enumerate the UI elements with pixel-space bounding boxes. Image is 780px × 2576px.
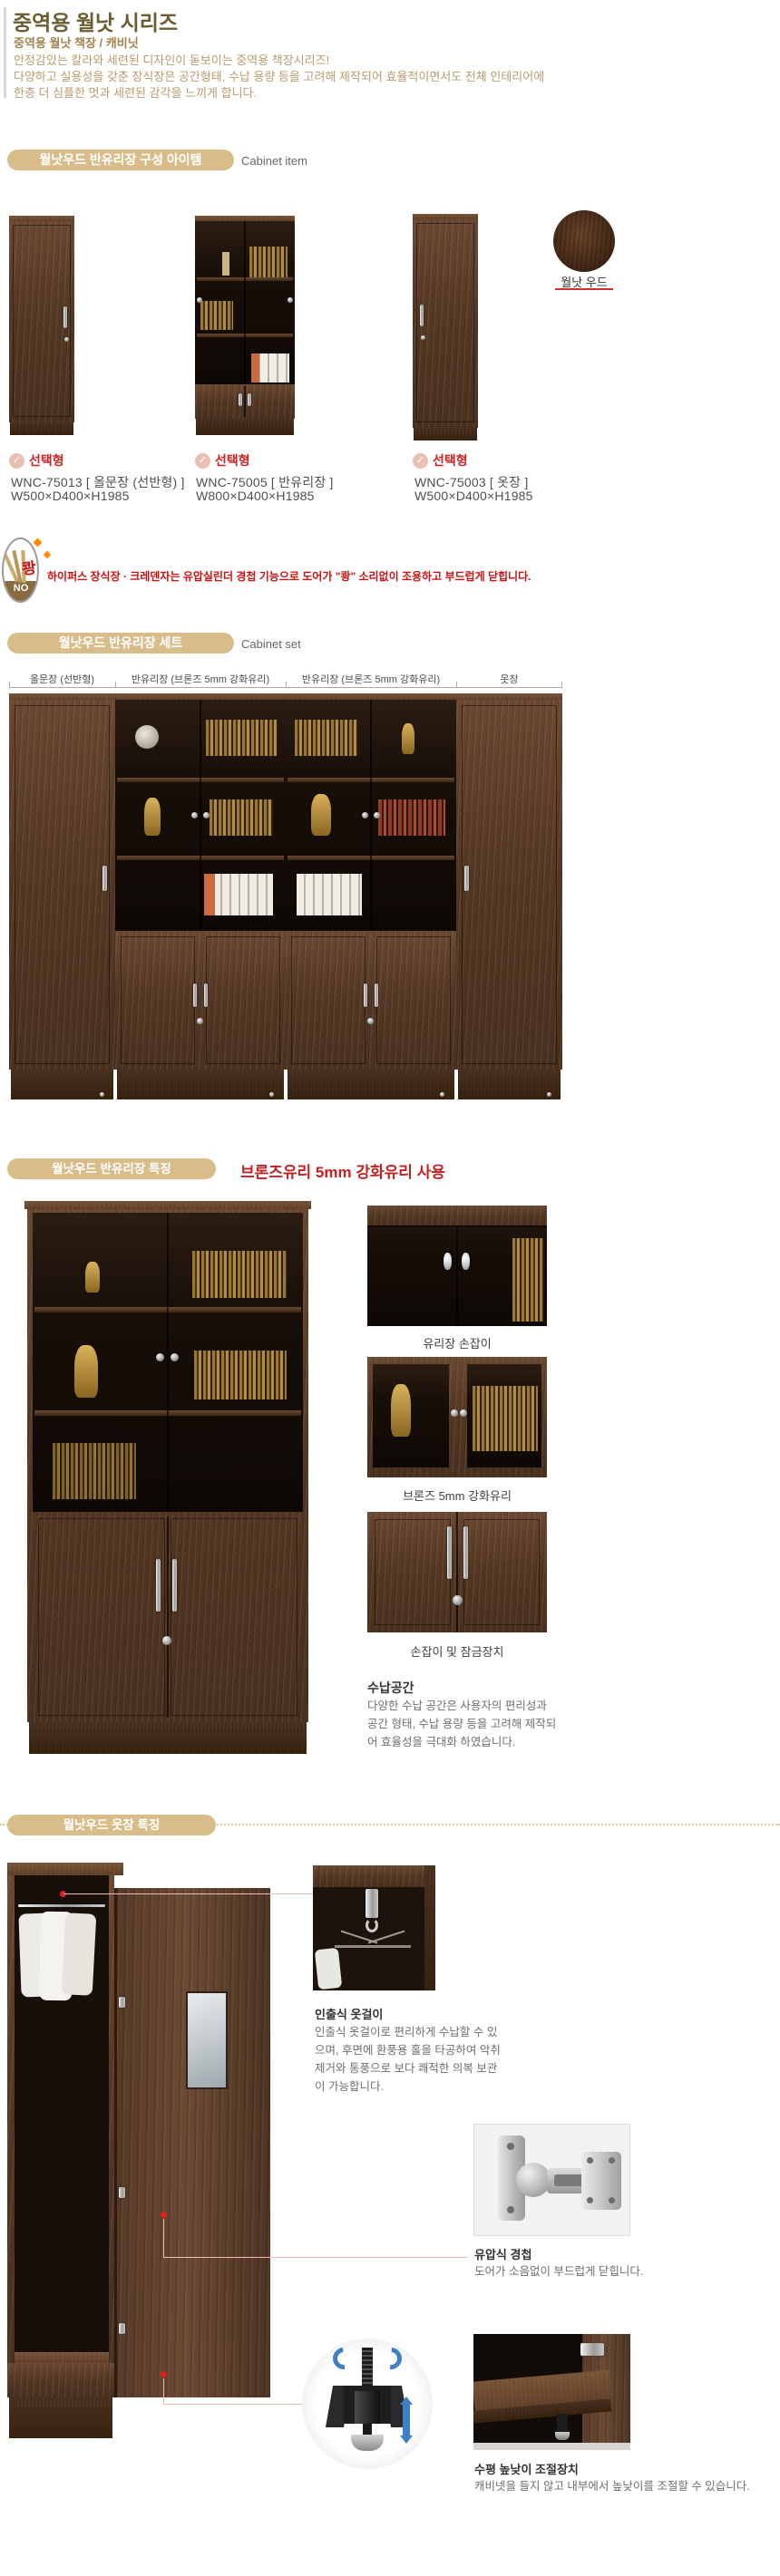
wardrobe-base-panel: [7, 2363, 114, 2397]
door-hinge: [119, 2187, 125, 2198]
side-panel: [424, 1865, 435, 1990]
detail-photo-handle-lock: [367, 1512, 547, 1632]
leveler-mini: [557, 2414, 568, 2434]
glass-knob: [362, 812, 368, 818]
wardrobe-open-photo: [7, 1863, 272, 2443]
book-row: [194, 1351, 287, 1399]
cabinet-top: [456, 693, 562, 700]
glass-knob: [171, 1353, 179, 1361]
cabinet-door: [462, 705, 557, 1064]
cabinet-plinth: [10, 422, 73, 435]
glass-doors: [195, 221, 295, 384]
product-photo-full-door-cabinet: [9, 216, 74, 435]
hinge-hole: [587, 2197, 593, 2203]
leveler-mini-foot: [555, 2432, 570, 2440]
glass-knob: [203, 812, 210, 818]
lower-door-panel: [291, 936, 366, 1064]
door-handle: [447, 1526, 452, 1579]
option-badge: ✓ 선택형: [195, 451, 250, 470]
wardrobe-top: [7, 1863, 123, 1875]
leveler-threaded-rod: [362, 2348, 373, 2389]
keyhole: [64, 337, 69, 342]
callout-dot: [161, 2212, 167, 2218]
ruler-tick: [9, 682, 10, 688]
binder-orange: [251, 353, 259, 383]
lower-door-divider: [244, 386, 246, 417]
cabinet-top: [24, 1201, 311, 1209]
lower-door-panel: [376, 936, 451, 1064]
shelf-top: [367, 1206, 547, 1227]
set-column-label: 올문장 (선반형): [9, 672, 115, 686]
feature3-title: 수평 높낮이 조절장치: [474, 2460, 579, 2477]
bottle: [222, 252, 229, 276]
page-subtitle: 중역용 월낫 책장 / 캐비닛: [14, 34, 139, 51]
glass-door-divider: [167, 1213, 169, 1512]
figure-ornament: [311, 794, 331, 836]
book-row-red: [378, 799, 445, 836]
arrow-shaft: [403, 2405, 410, 2436]
ruler-tick: [456, 682, 457, 688]
detail-caption: 브론즈 5mm 강화유리: [367, 1487, 547, 1504]
no-slam-icon: NO 쾅: [2, 537, 53, 606]
floor: [473, 2443, 630, 2450]
lower-door-panel: [38, 1518, 165, 1716]
glass-door-handle: [462, 1253, 470, 1270]
cabinet-plinth: [29, 1722, 307, 1754]
rotate-arrow-icon: [328, 2343, 359, 2374]
cabinet-set-photo: [9, 693, 562, 1099]
no-label: NO: [4, 583, 38, 594]
hinge-hole: [609, 2197, 615, 2203]
glass-knob: [156, 1353, 164, 1361]
feature3-body: 캐비넷을 들지 않고 내부에서 높낮이를 조절할 수 있습니다.: [474, 2477, 765, 2495]
lower-door-divider: [167, 1516, 169, 1718]
spark-icon: [44, 551, 51, 558]
ruler-tick: [561, 682, 562, 688]
storage-body: 다양한 수납 공간은 사용자의 편리성과 공간 형태, 수납 용량 등을 고려해…: [367, 1697, 560, 1751]
cabinet-door: [15, 705, 110, 1064]
glass-knob: [197, 297, 202, 303]
product-size: W500×D400×H1985: [11, 489, 130, 503]
callout-line: [163, 2404, 304, 2405]
option-badge: ✓ 선택형: [413, 451, 468, 470]
callout-line: [63, 1893, 313, 1894]
door-hinge: [119, 1997, 125, 2008]
book-row: [473, 1386, 538, 1451]
cabinet-door: [13, 225, 71, 417]
wardrobe-plinth: [9, 2397, 112, 2438]
kwang-label: 쾅: [20, 555, 37, 579]
keyhole-lock: [453, 1595, 463, 1605]
leveler-foot: [269, 1092, 274, 1097]
section-feature-header: 월낫우드 반유리장 특징: [7, 1158, 216, 1179]
detail-photo-glass-handle: [367, 1206, 547, 1326]
product-photo-half-glass-cabinet: [195, 216, 295, 435]
check-icon: ✓: [413, 453, 428, 469]
lower-door-divider: [456, 1512, 458, 1632]
lower-door-panel: [171, 1518, 297, 1716]
set-column-label: 옷장: [456, 672, 562, 686]
lower-handle: [193, 983, 197, 1007]
leveler-stem: [363, 2424, 372, 2435]
glass-compartment: [373, 1364, 449, 1467]
glass-door-divider: [370, 700, 372, 931]
cabinet-top: [115, 693, 286, 700]
book-row: [512, 1238, 543, 1322]
cabinet-top: [286, 693, 456, 700]
ruler-tick: [115, 682, 116, 688]
lower-door-panel: [121, 936, 195, 1064]
notice-text: 하이퍼스 장식장 · 크레덴자는 유압실린더 경첩 기능으로 도어가 "쾅" 소…: [47, 568, 531, 584]
section-set-subtitle: Cabinet set: [241, 637, 301, 651]
hinge-hole: [507, 2206, 514, 2213]
option-badge-label: 선택형: [433, 451, 468, 470]
leveler-foot: [547, 1092, 551, 1097]
arrow-down-icon: [400, 2436, 413, 2444]
lower-handle: [364, 983, 367, 1007]
glass-knob: [374, 812, 380, 818]
hanger-hook: [366, 1918, 378, 1932]
leveler-foot: [440, 1092, 444, 1097]
wardrobe-open-door: [114, 1888, 270, 2397]
ruler-tick: [286, 682, 287, 688]
product-size: W800×D400×H1985: [196, 489, 315, 503]
interior-shelf: [15, 2352, 109, 2363]
cabinet-plinth: [196, 419, 294, 435]
pullout-hanger-photo: [313, 1865, 435, 1990]
glass-knob: [460, 1409, 467, 1417]
glass-knob: [451, 1409, 458, 1417]
product-detail-page: 중역용 월낫 시리즈 중역용 월낫 책장 / 캐비닛 안정감있는 칼라와 세련된…: [0, 0, 780, 2576]
cabinet-top: [9, 693, 115, 700]
cabinet-door: [416, 223, 474, 422]
storage-title: 수납공간: [367, 1679, 414, 1697]
lower-door-panel: [206, 936, 280, 1064]
set-column-label: 반유리장 (브론즈 5mm 강화유리): [115, 672, 286, 686]
hanger-arm: [368, 1931, 405, 1944]
lower-handle: [248, 393, 251, 406]
glass-doors: [286, 700, 456, 931]
glass-doors: [115, 700, 286, 931]
leveler-cylinder: [355, 2391, 380, 2424]
wood-swatch: [553, 210, 615, 272]
lower-handle: [239, 393, 242, 406]
hinge-small: [580, 2343, 604, 2356]
keyhole: [367, 1018, 374, 1024]
goblet-ornament: [85, 1262, 100, 1293]
callout-line-vertical: [163, 2219, 164, 2257]
door-handle: [420, 305, 424, 326]
glass-door-handle: [444, 1253, 452, 1270]
lower-handle: [172, 1559, 177, 1612]
section-wardrobe-header: 월낫우드 옷장 특징: [7, 1815, 216, 1835]
hinge-hole: [507, 2143, 514, 2150]
feature2-body: 도어가 소음없이 부드럽게 닫힙니다.: [474, 2262, 746, 2281]
feature1-body: 인출식 옷걸이로 편리하게 수납할 수 있으며, 후면에 환풍용 홀을 타공하여…: [315, 2023, 502, 2096]
garment: [315, 1948, 342, 1990]
hinge-hole: [609, 2157, 615, 2164]
hinge-hole: [587, 2157, 593, 2164]
book-row: [200, 301, 233, 330]
set-cabinet-wardrobe: [456, 693, 562, 1099]
glass-door-divider: [456, 1227, 458, 1326]
feature-highlight: 브론즈유리 5mm 강화유리 사용: [240, 1159, 445, 1182]
hanger-bar: [335, 1945, 411, 1948]
feature1-title: 인출식 옷걸이: [315, 2005, 383, 2022]
trophy-ornament: [144, 798, 161, 836]
book-row: [192, 1251, 287, 1298]
hanging-shirt: [62, 1913, 97, 1996]
book-row: [210, 799, 273, 836]
set-cabinet-half-glass: [286, 693, 456, 1099]
ceiling-panel: [313, 1865, 435, 1887]
callout-line: [163, 2257, 468, 2258]
page-desc-line1: 안정감있는 칼라와 세련된 디자인이 돋보이는 중역용 책장시리즈!: [14, 51, 329, 68]
cabinet-plinth: [117, 1070, 284, 1099]
hanger-rail: [18, 1904, 105, 1907]
cabinet-plinth: [11, 1070, 113, 1099]
feature2-title: 유압식 경첩: [474, 2245, 531, 2262]
page-title: 중역용 월낫 시리즈: [13, 5, 178, 36]
glass-knob: [191, 812, 198, 818]
hinge-cup: [516, 2163, 551, 2197]
set-cabinet-half-glass: [115, 693, 286, 1099]
leveler-zoom-circle: [302, 2339, 433, 2469]
detail-caption: 유리장 손잡이: [367, 1334, 547, 1351]
door-handle: [63, 306, 67, 328]
lower-handle: [375, 983, 378, 1007]
door-panel: [463, 1519, 540, 1625]
page-desc-line3: 한층 더 심플한 멋과 세련된 감각을 느끼게 합니다.: [14, 83, 257, 101]
option-badge: ✓ 선택형: [9, 451, 64, 470]
cabinet-plinth: [458, 1070, 561, 1099]
book-row: [206, 720, 277, 756]
door-hinge: [119, 2323, 125, 2334]
product-size: W500×D400×H1985: [414, 489, 533, 503]
product-photo-wardrobe: [413, 214, 478, 441]
detail-photo-bronze-glass: [367, 1357, 547, 1477]
keyhole: [421, 335, 425, 340]
set-column-label: 반유리장 (브론즈 5mm 강화유리): [286, 672, 456, 686]
page-desc-line2: 다양하고 실용성을 갖춘 장식장은 공간형태, 수납 용량 등을 고려해 제작되…: [14, 67, 544, 84]
cabinet-base-photo: [473, 2334, 630, 2450]
option-badge-label: 선택형: [215, 451, 250, 470]
callout-line-vertical: [163, 2378, 164, 2404]
plate-ornament: [135, 725, 159, 749]
door-panel: [375, 1519, 451, 1625]
hinge-photo: [473, 2124, 630, 2236]
header-left-rule: [4, 7, 6, 98]
option-badge-label: 선택형: [29, 451, 64, 470]
door-handle: [463, 1526, 468, 1579]
section-item-subtitle: Cabinet item: [241, 154, 307, 168]
rotate-arrow-icon: [375, 2343, 406, 2374]
detail-caption: 손잡이 및 잠금장치: [367, 1642, 547, 1660]
glass-door-divider: [244, 221, 246, 384]
set-cabinet-full-door: [9, 693, 115, 1099]
lower-handle: [156, 1559, 161, 1612]
binder-row: [297, 874, 362, 915]
binder-orange: [204, 874, 215, 915]
spark-icon: [34, 538, 43, 547]
keyhole: [197, 1018, 203, 1024]
section-item-header: 월낫우드 반유리장 구성 아이템: [7, 150, 234, 170]
lower-handle: [204, 983, 208, 1007]
leveler-foot: [351, 2435, 384, 2451]
goblet-ornament: [402, 723, 414, 754]
check-icon: ✓: [195, 453, 210, 469]
hanger-slide: [366, 1889, 378, 1918]
feature-cabinet-photo: [27, 1201, 308, 1754]
glass-door-divider: [200, 700, 201, 931]
glass-knob: [288, 297, 293, 303]
keyhole: [162, 1636, 171, 1645]
section-set-header: 월낫우드 반유리장 세트: [7, 633, 234, 654]
cabinet-plinth: [288, 1070, 454, 1099]
leveler-foot: [100, 1092, 104, 1097]
book-row: [53, 1443, 136, 1499]
figure-ornament: [391, 1384, 411, 1437]
wood-swatch-underline: [555, 288, 613, 290]
check-icon: ✓: [9, 453, 24, 469]
callout-dot: [161, 2371, 167, 2377]
door-handle: [464, 866, 469, 891]
cabinet-plinth: [414, 428, 477, 441]
glass-doors: [33, 1213, 303, 1512]
book-row: [295, 720, 358, 756]
door-handle: [102, 866, 107, 891]
figure-ornament: [74, 1345, 98, 1398]
book-row: [249, 247, 288, 277]
door-mirror: [186, 1991, 228, 2089]
arrow-up-icon: [400, 2397, 413, 2405]
